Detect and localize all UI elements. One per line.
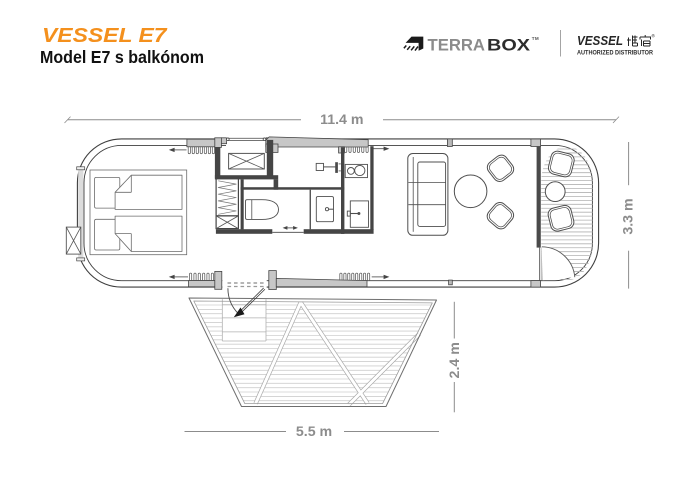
svg-text:TM: TM xyxy=(532,36,539,41)
svg-text:AUTHORIZED DISTRIBUTOR: AUTHORIZED DISTRIBUTOR xyxy=(577,50,654,57)
svg-text:Model E7 s balkónom: Model E7 s balkónom xyxy=(40,47,204,67)
svg-text:TERRA: TERRA xyxy=(428,36,486,54)
svg-text:BOX: BOX xyxy=(487,36,530,54)
svg-text:3.3 m: 3.3 m xyxy=(621,198,637,234)
svg-text:5.5 m: 5.5 m xyxy=(296,424,332,440)
svg-text:VESSEL E7: VESSEL E7 xyxy=(42,24,168,47)
svg-text:2.4 m: 2.4 m xyxy=(447,342,463,378)
svg-text:11.4 m: 11.4 m xyxy=(320,112,363,128)
svg-text:VESSEL: VESSEL xyxy=(577,33,623,48)
